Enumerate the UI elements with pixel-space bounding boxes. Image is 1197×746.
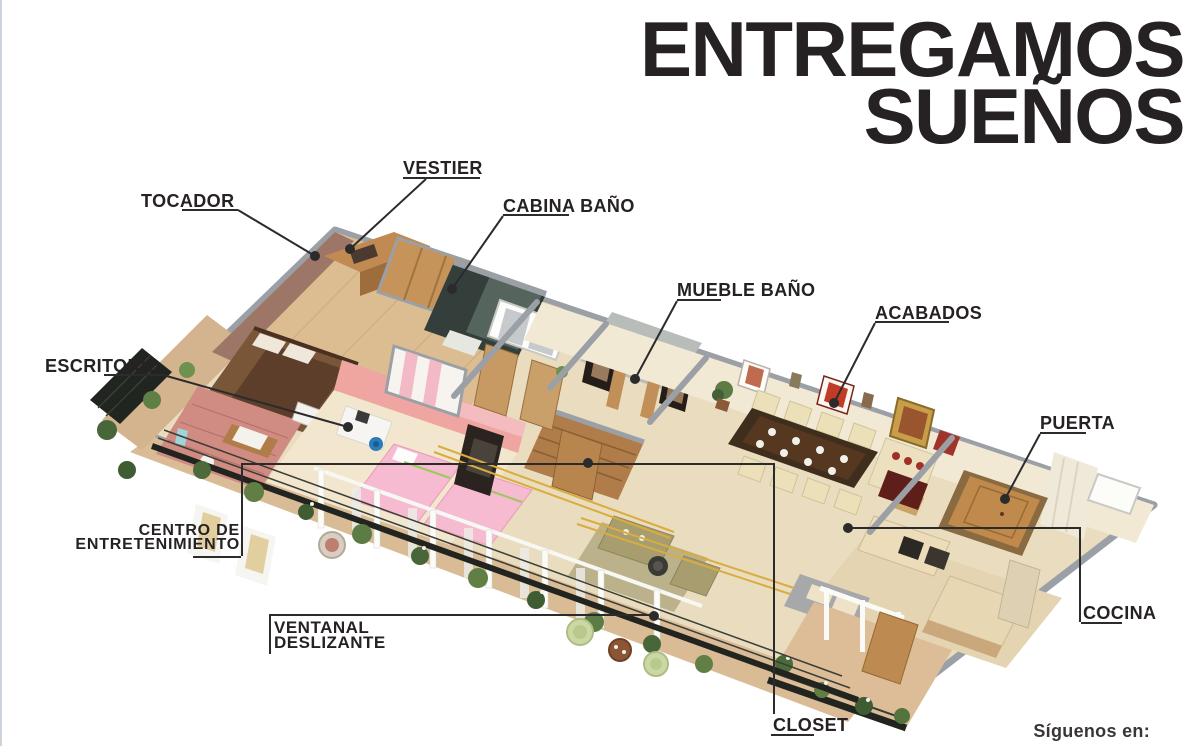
callout-dot-ventanal [649,611,659,621]
callout-dot-cocina [843,523,853,533]
painting [861,392,874,409]
page-title: ENTREGAMOS SUEÑOS [640,16,1184,150]
label-vestier: VESTIER [403,159,483,177]
label-cocina: COCINA [1083,604,1156,622]
label-cabina-bano: CABINA BAÑO [503,197,635,215]
follow-us-text: Síguenos en: [1033,721,1150,742]
label-acabados: ACABADOS [875,304,982,322]
callout-dot-cabina-bano [447,284,457,294]
patio-table [609,639,631,661]
label-puerta: PUERTA [1040,414,1115,432]
label-centro-line2: ENTRETENIMIENTO [75,538,240,552]
callout-dot-escritorio [343,422,353,432]
label-centro-entretenimiento: CENTRO DE ENTRETENIMIENTO [75,524,240,552]
callout-dot-acabados [829,398,839,408]
label-tocador: TOCADOR [141,192,234,210]
label-closet: CLOSET [773,716,848,734]
label-escritorio: ESCRITORIO [45,357,161,375]
label-ventanal-line2: DESLIZANTE [274,635,386,650]
title-line-2: SUEÑOS [640,83,1184,150]
label-ventanal-deslizante: VENTANAL DESLIZANTE [274,620,386,650]
leader-line-acabados [834,323,875,403]
flyer-page: ENTREGAMOS SUEÑOS TOCADOR VESTIER CABINA… [0,0,1197,746]
callout-dot-vestier [345,244,355,254]
callout-dot-mueble-bano [630,374,640,384]
label-mueble-bano: MUEBLE BAÑO [677,281,815,299]
callout-dot-tocador [310,251,320,261]
callout-dot-puerta [1000,494,1010,504]
callout-dot-centro-closet [583,458,593,468]
leader-line-tocador [238,210,315,256]
